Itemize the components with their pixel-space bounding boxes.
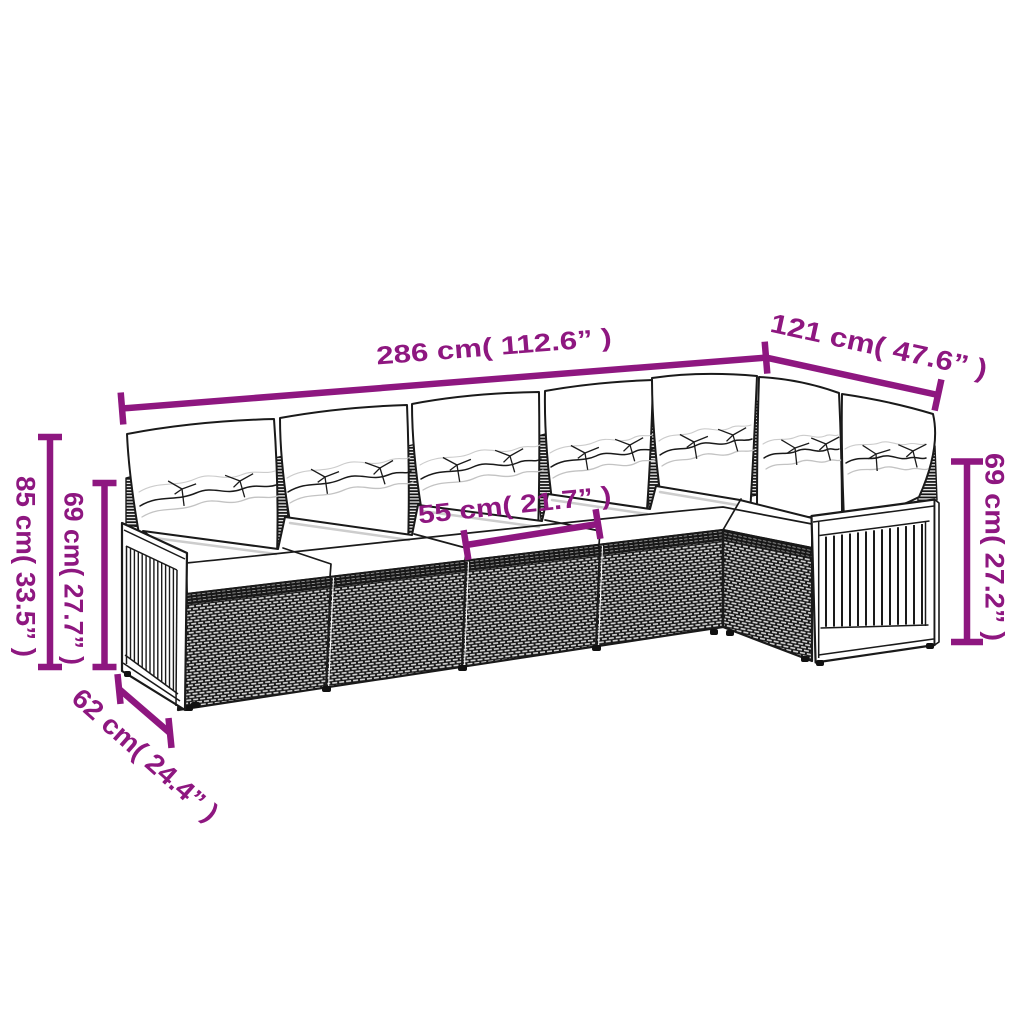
svg-text:85 cm( 33.5” ): 85 cm( 33.5” ) <box>11 476 41 657</box>
svg-text:69 cm( 27.7” ): 69 cm( 27.7” ) <box>59 492 89 665</box>
svg-text:286 cm( 112.6” ): 286 cm( 112.6” ) <box>375 324 612 371</box>
svg-text:69 cm( 27.2” ): 69 cm( 27.2” ) <box>980 453 1010 641</box>
svg-text:121 cm( 47.6” ): 121 cm( 47.6” ) <box>768 308 990 384</box>
